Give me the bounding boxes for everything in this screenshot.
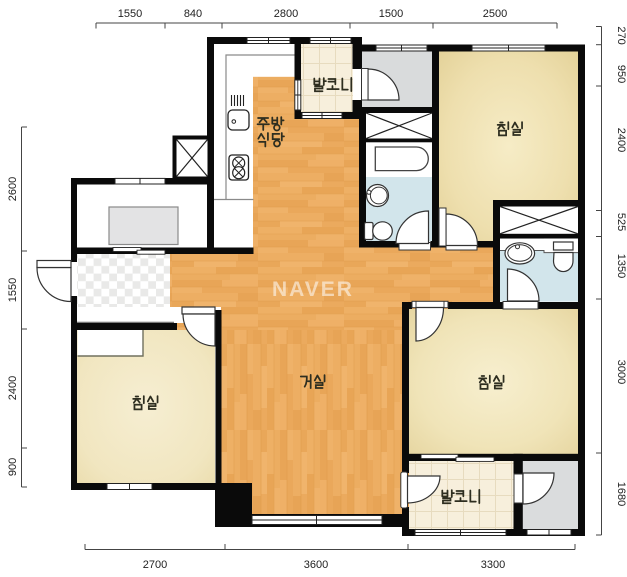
- svg-text:840: 840: [184, 8, 202, 20]
- svg-text:2700: 2700: [143, 559, 167, 571]
- svg-text:1500: 1500: [379, 8, 403, 20]
- svg-text:3600: 3600: [304, 559, 328, 571]
- svg-text:270: 270: [615, 26, 627, 44]
- svg-text:1680: 1680: [615, 482, 627, 506]
- svg-text:1350: 1350: [615, 254, 627, 278]
- svg-text:NAVER: NAVER: [272, 278, 354, 301]
- svg-text:3300: 3300: [481, 559, 505, 571]
- svg-text:2400: 2400: [615, 128, 627, 152]
- svg-text:2600: 2600: [7, 177, 19, 201]
- svg-text:900: 900: [7, 458, 19, 476]
- svg-text:3000: 3000: [615, 360, 627, 384]
- svg-text:2800: 2800: [274, 8, 298, 20]
- svg-text:525: 525: [615, 213, 627, 231]
- svg-text:950: 950: [615, 65, 627, 83]
- svg-text:1550: 1550: [118, 8, 142, 20]
- svg-text:1550: 1550: [7, 278, 19, 302]
- svg-text:2500: 2500: [483, 8, 507, 20]
- svg-text:2400: 2400: [7, 376, 19, 400]
